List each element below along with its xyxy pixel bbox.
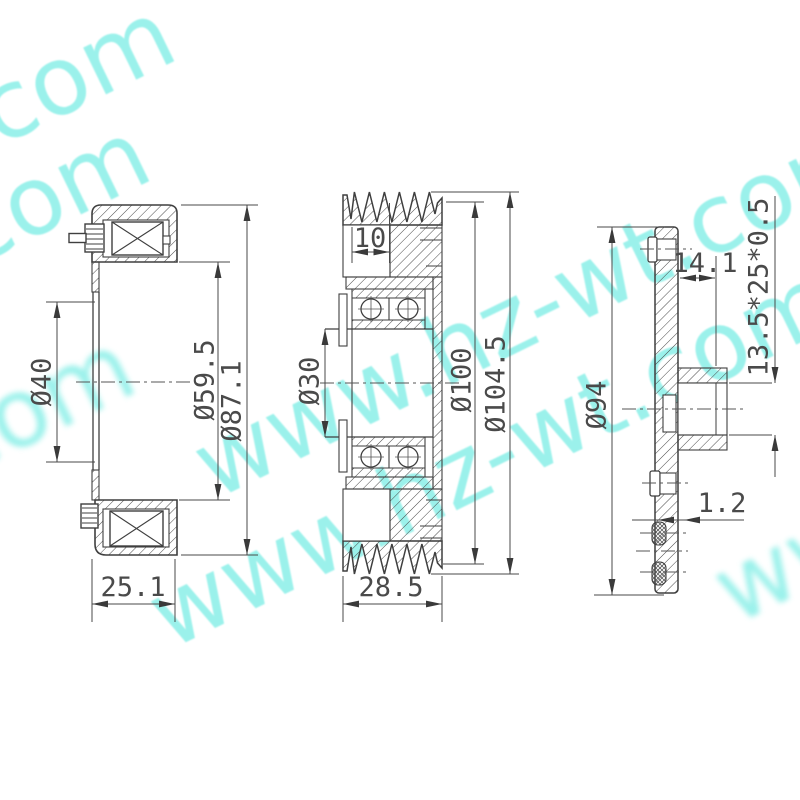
dust-shield-top (339, 294, 347, 346)
dim-label-w28-5: 28.5 (358, 572, 423, 603)
dim-label-w10: 10 (354, 223, 387, 254)
hub-boss-top-flange (678, 368, 727, 383)
rivet-body-middle (660, 473, 676, 494)
dim-label-d30: Ø30 (295, 357, 326, 406)
dim-label-d94: Ø94 (582, 381, 613, 430)
web-window-bottom (343, 489, 390, 541)
outer-race-top (352, 289, 425, 298)
spline-bore (663, 395, 676, 432)
rim-section-bottom (390, 489, 442, 541)
dim-label-t1-2: 1.2 (698, 488, 747, 519)
rivet-head-top (648, 237, 657, 262)
dim-label-d87-1: Ø87.1 (217, 360, 248, 441)
dim-label-d100: Ø100 (447, 347, 478, 412)
hub-boss-bottom-flange (678, 435, 727, 450)
dim-label-w14-1: 14.1 (672, 248, 737, 279)
inner-race-top (352, 320, 425, 329)
dim-label-d104-5: Ø104.5 (481, 335, 512, 433)
outer-race-bottom (352, 468, 425, 477)
inner-race-bottom (352, 437, 425, 446)
connector-pin (69, 234, 86, 243)
bearing-seat-top (346, 277, 433, 289)
flange-section-bottom (92, 470, 99, 500)
dim-label-bearing-spec: 13.5*25*0.5 (744, 198, 775, 377)
bearing-seat-bottom (346, 477, 433, 489)
rivet-lower-2 (652, 562, 666, 585)
dust-shield-bottom (339, 420, 347, 472)
dim-label-w25-1: 25.1 (100, 572, 165, 603)
rim-section-top (390, 225, 442, 277)
rivet-head-middle (650, 471, 660, 496)
technical-drawing-canvas: www.hz-wt.com www.hz-wt.com www.hz-wt.co… (0, 0, 800, 800)
coil-connector (85, 224, 104, 252)
flange-section-top (92, 262, 99, 292)
rivet-lower-1 (652, 522, 666, 545)
dim-label-d40: Ø40 (27, 358, 58, 407)
pole-notch (163, 236, 170, 244)
